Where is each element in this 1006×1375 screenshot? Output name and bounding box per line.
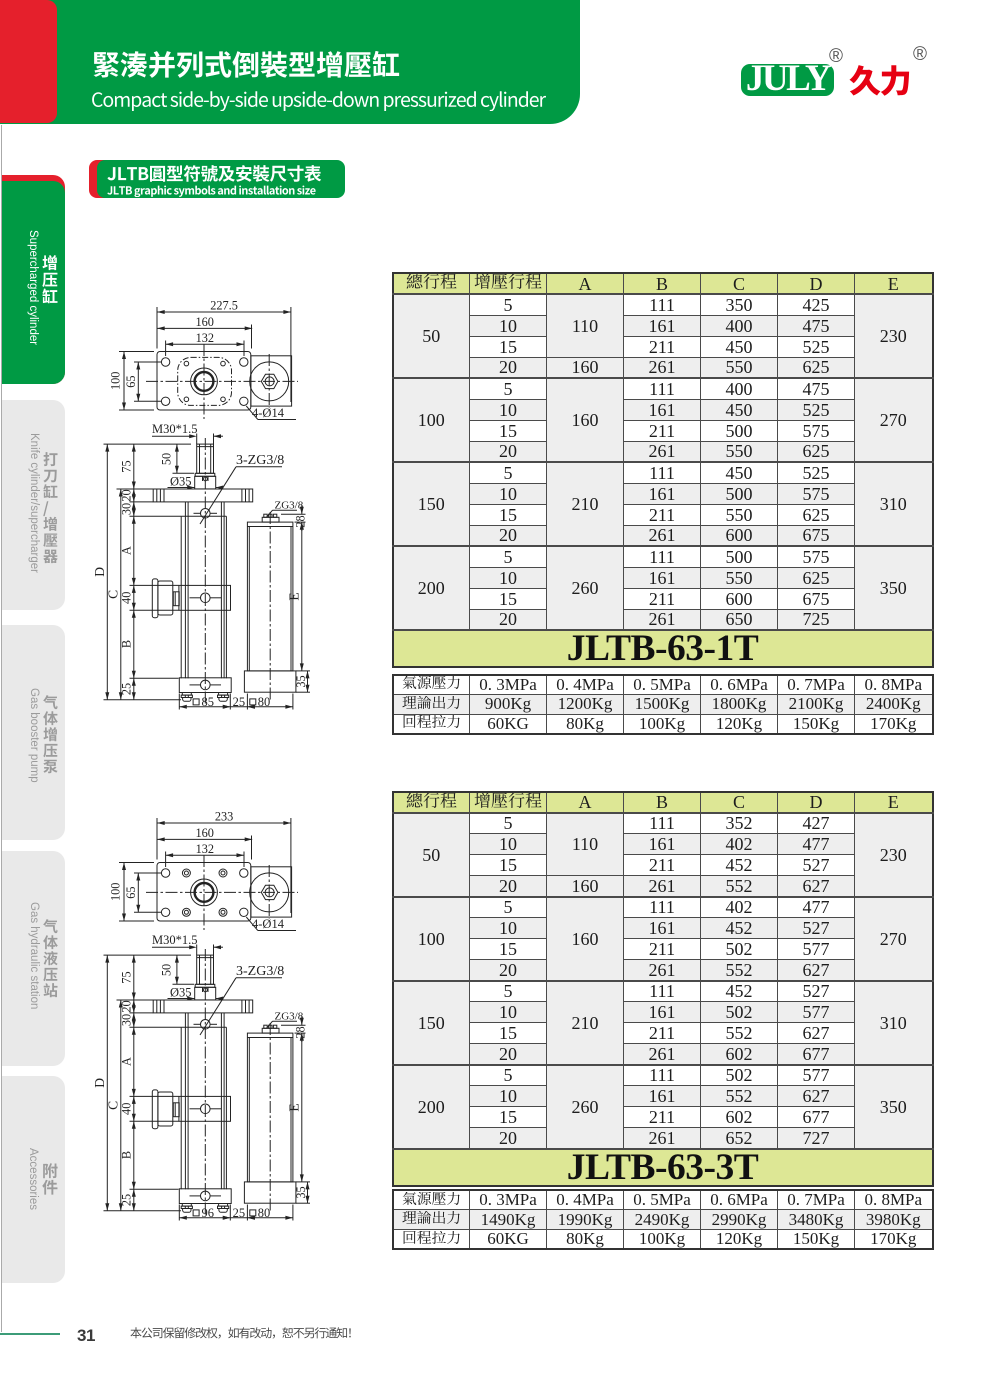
svg-text:75: 75 [119,971,133,983]
svg-text:100: 100 [109,883,123,901]
svg-text:3-ZG3/8: 3-ZG3/8 [236,453,284,468]
svg-text:40: 40 [119,592,133,604]
svg-text:E: E [286,1103,301,1111]
svg-text:160: 160 [195,315,213,329]
svg-text:100: 100 [109,372,123,390]
svg-text:B: B [119,640,133,648]
svg-text:65: 65 [124,376,138,388]
svg-text:227.5: 227.5 [210,299,238,313]
svg-text:E: E [286,592,301,600]
svg-text:4-Ø14: 4-Ø14 [252,406,285,420]
svg-text:30: 30 [119,1014,133,1026]
svg-text:D: D [95,1078,107,1088]
svg-text:160: 160 [195,826,213,840]
svg-text:80: 80 [258,695,271,709]
svg-text:40: 40 [119,1103,133,1115]
svg-text:B: B [119,1151,133,1159]
svg-text:233: 233 [215,810,233,824]
svg-text:A: A [119,1057,133,1066]
svg-text:132: 132 [196,331,214,345]
svg-text:132: 132 [196,842,214,856]
svg-text:28: 28 [294,515,308,527]
svg-text:M30*1.5: M30*1.5 [152,422,198,436]
svg-text:3-ZG3/8: 3-ZG3/8 [236,964,284,979]
svg-text:50: 50 [160,453,174,465]
svg-text:M30*1.5: M30*1.5 [152,933,198,947]
svg-text:25: 25 [233,695,246,709]
svg-text:A: A [119,546,133,555]
svg-text:85: 85 [202,695,215,709]
svg-text:35: 35 [294,675,308,687]
svg-text:30: 30 [119,503,133,515]
svg-text:28: 28 [294,1026,308,1038]
svg-text:50: 50 [160,964,174,976]
svg-text:25: 25 [233,1206,246,1220]
svg-text:35: 35 [294,1186,308,1198]
svg-text:4-Ø14: 4-Ø14 [252,917,285,931]
svg-text:80: 80 [258,1206,271,1220]
svg-text:96: 96 [202,1206,215,1220]
svg-text:65: 65 [124,887,138,899]
svg-text:D: D [95,567,107,577]
svg-text:75: 75 [119,460,133,472]
